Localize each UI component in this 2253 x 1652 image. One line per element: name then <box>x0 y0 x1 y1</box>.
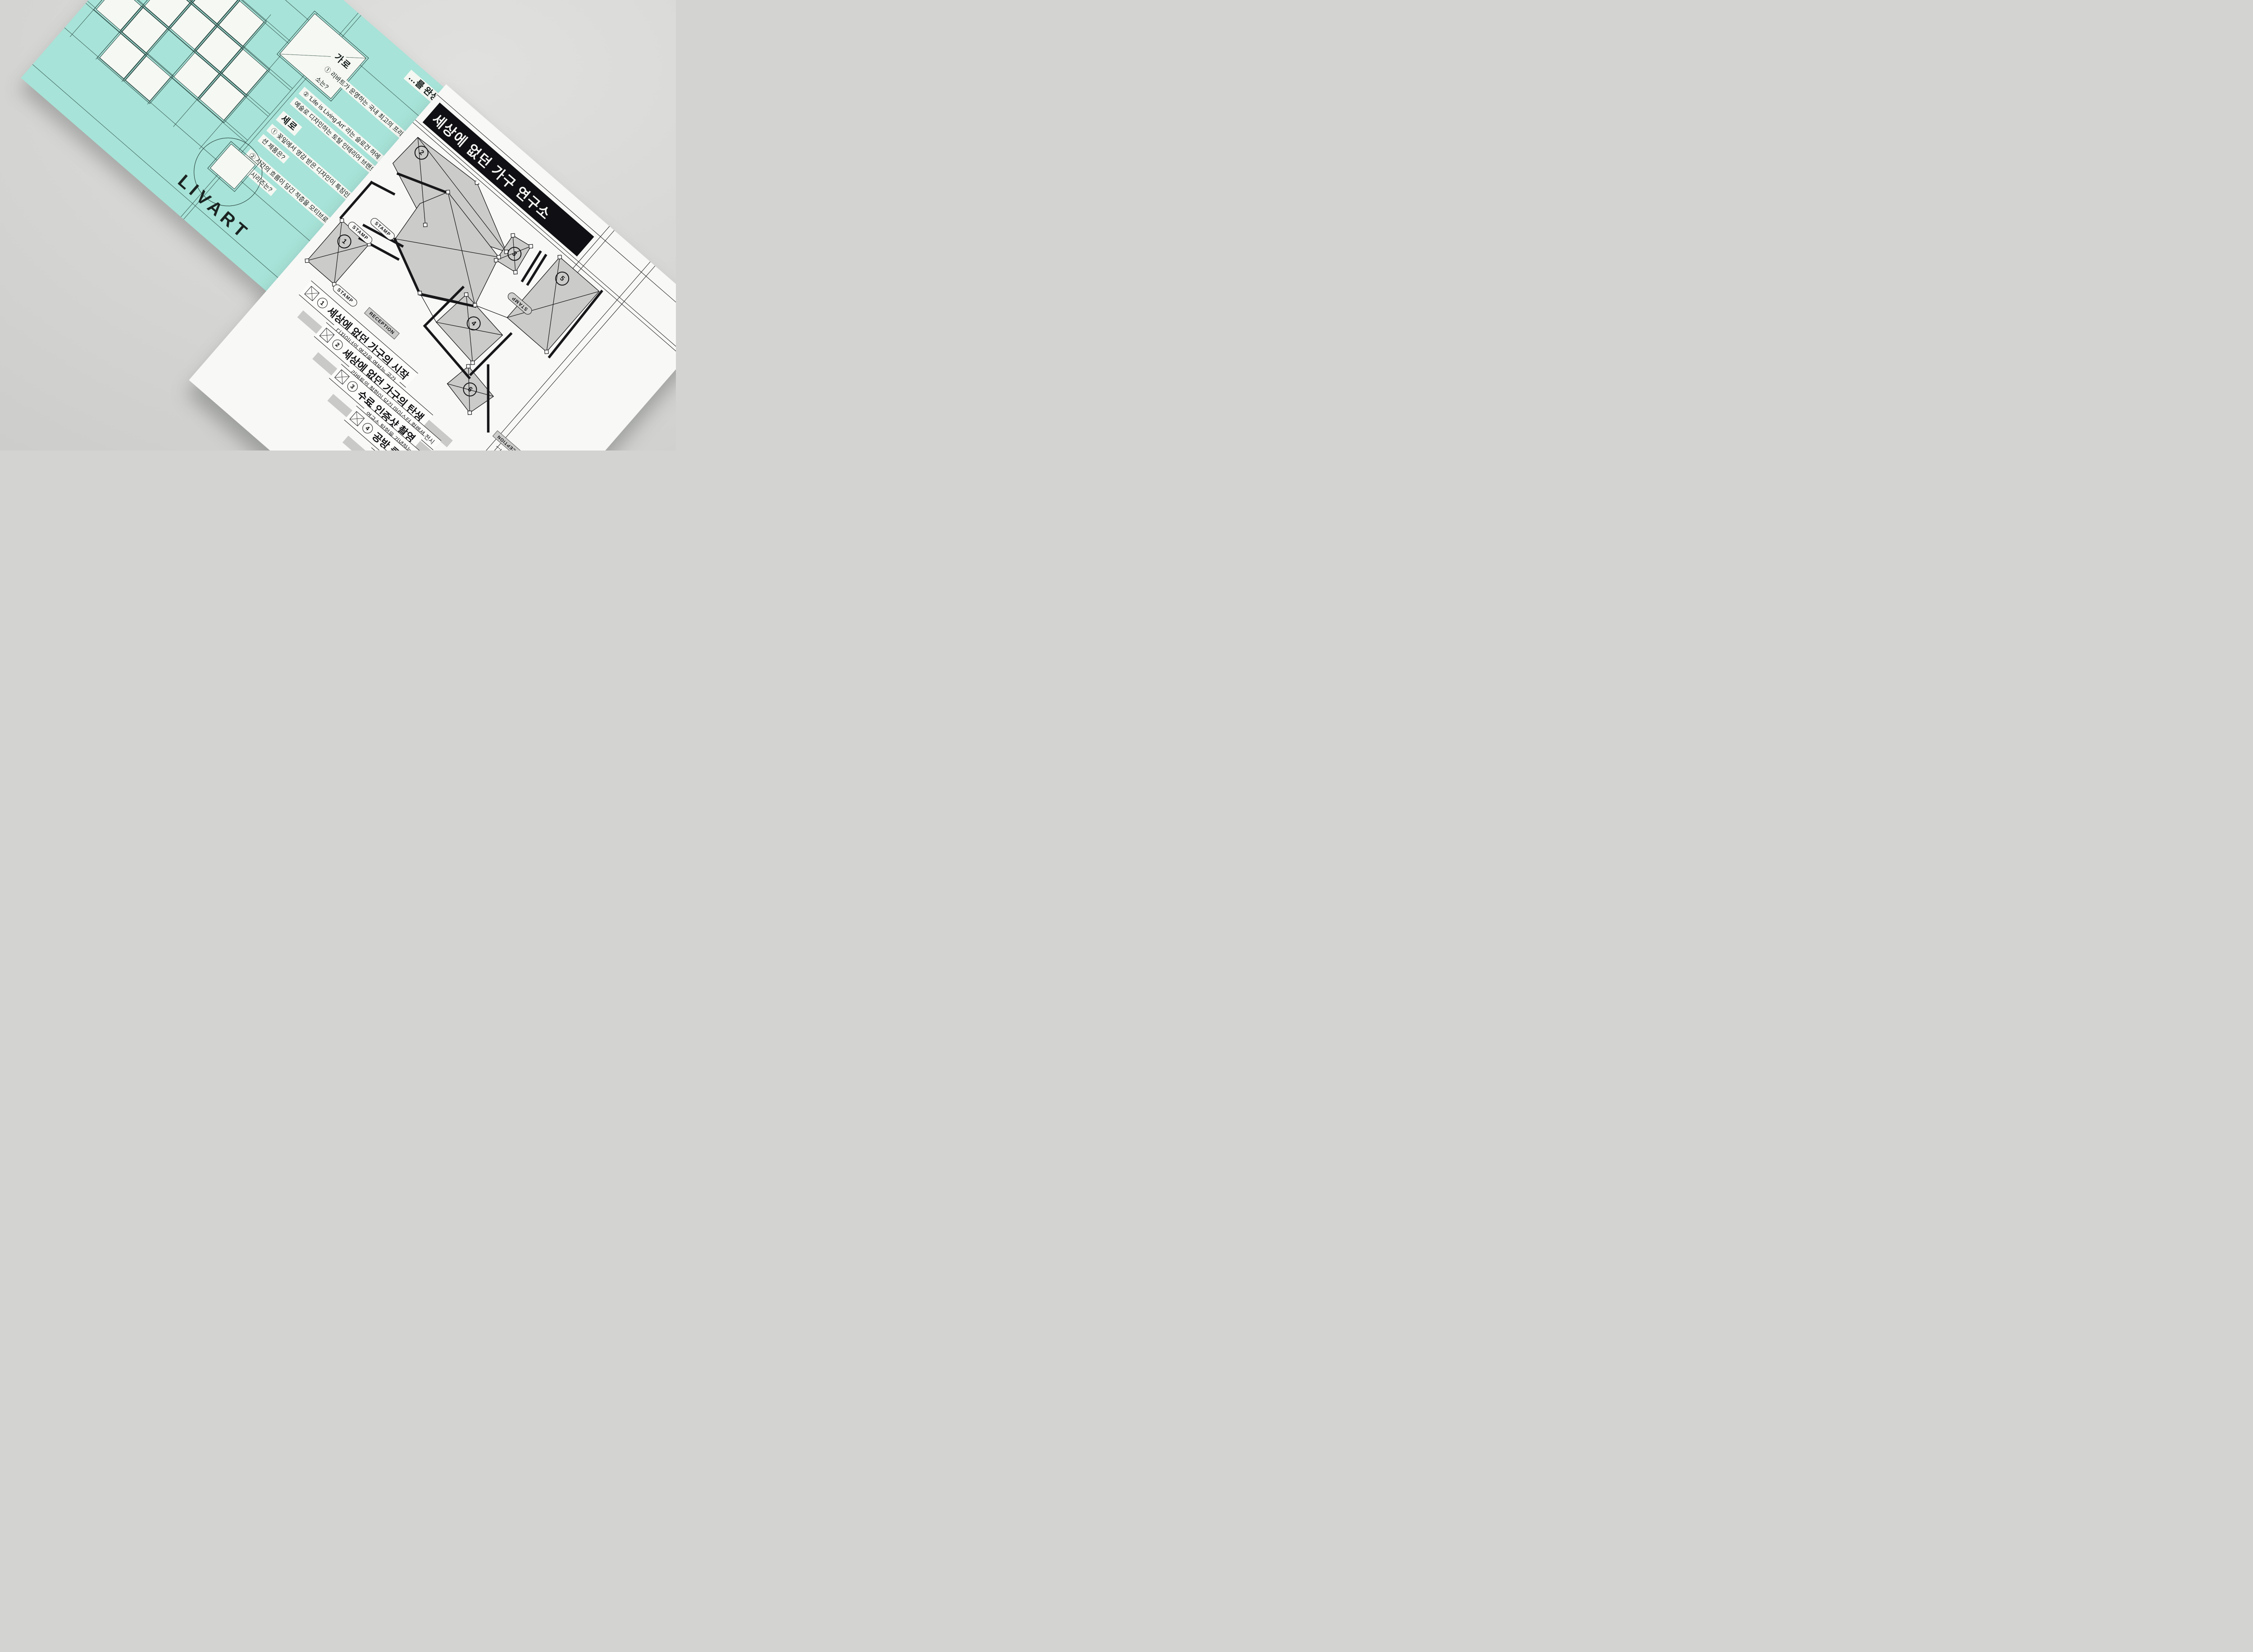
stamp-checkbox-icon <box>334 369 350 385</box>
stamp-checkbox-icon <box>349 411 365 427</box>
photo-stage: 리 …를 완성해보세요 가로 ① 리바트가 운영하는 국내 최고의 프리미엄 가… <box>0 0 676 451</box>
stamp-checkbox-icon <box>319 328 335 343</box>
legend-num: 1 <box>315 296 330 310</box>
stamp-checkbox-icon <box>304 286 319 301</box>
legend-num: 3 <box>346 379 360 393</box>
legend-num: 2 <box>330 337 345 352</box>
legend-num: 4 <box>360 421 375 435</box>
